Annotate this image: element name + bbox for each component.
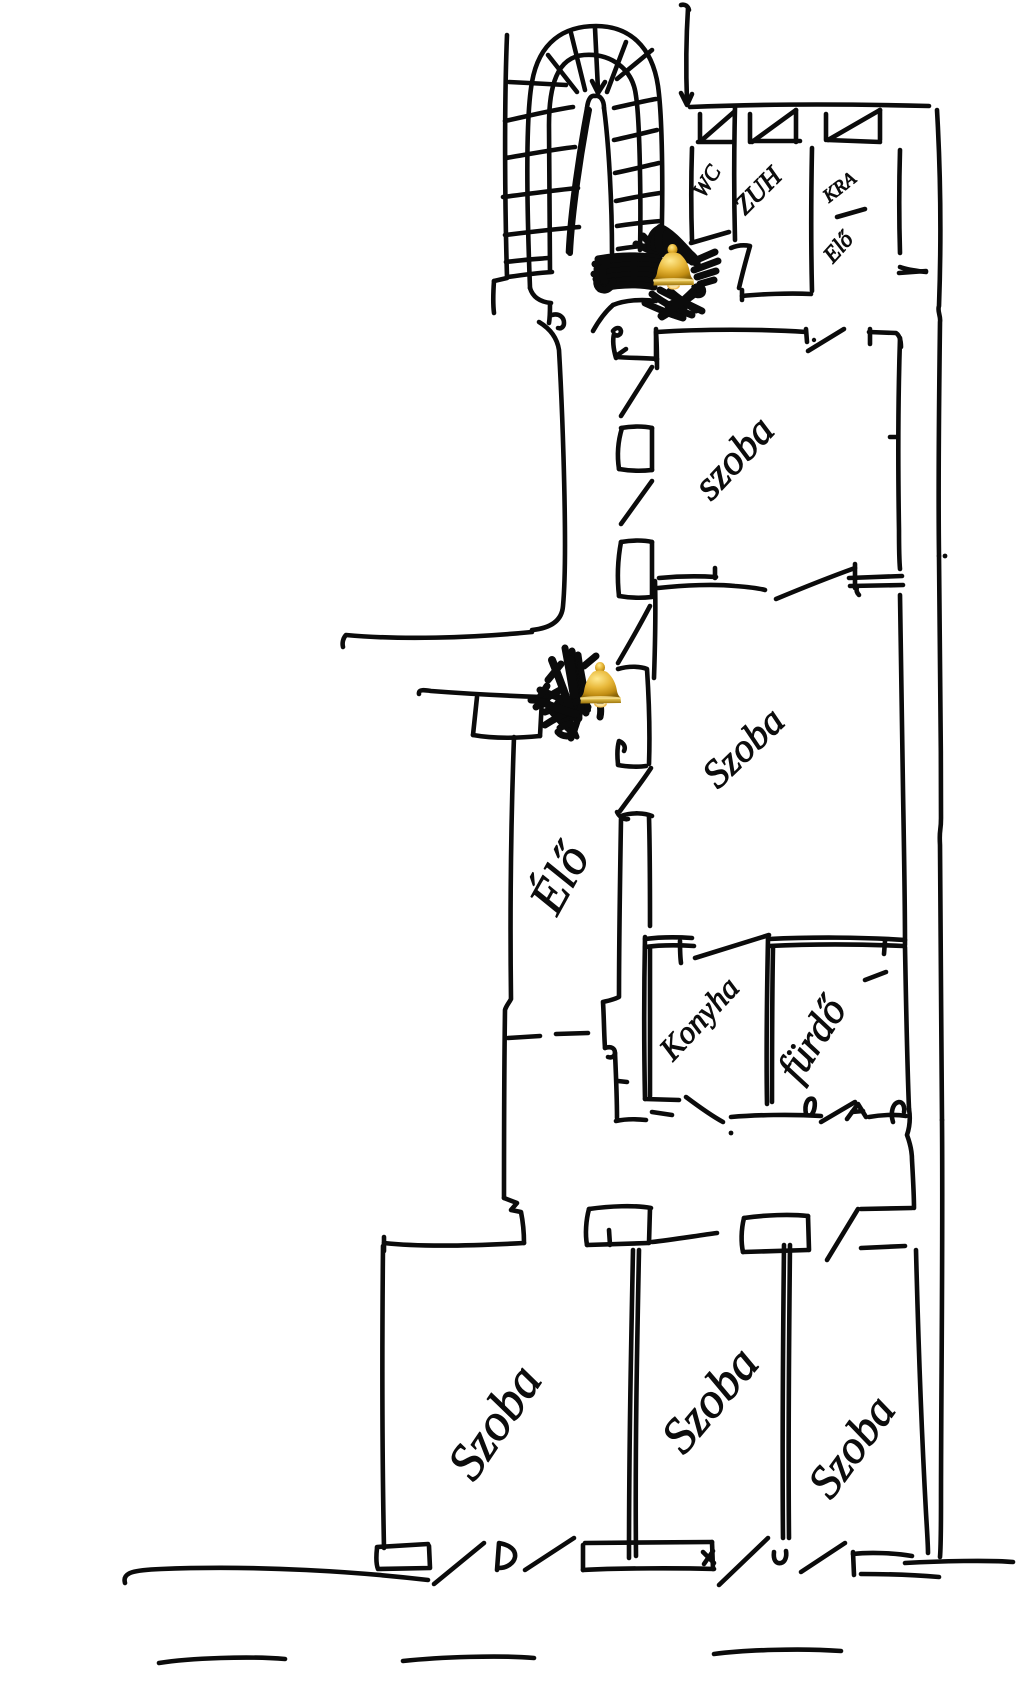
svg-text:ZUH: ZUH: [728, 160, 788, 220]
svg-text:Szoba: Szoba: [437, 1355, 554, 1490]
svg-text:Szoba: Szoba: [693, 698, 793, 797]
svg-text:fürdő: fürdő: [769, 988, 857, 1090]
svg-text:szoba: szoba: [685, 407, 784, 508]
svg-text:Konyha: Konyha: [651, 969, 746, 1067]
svg-text:Szoba: Szoba: [798, 1386, 906, 1507]
svg-text:Szoba: Szoba: [650, 1336, 770, 1464]
svg-text:Elő: Elő: [817, 226, 859, 268]
svg-text:KRA: KRA: [818, 168, 860, 207]
svg-text:Élő: Élő: [517, 833, 601, 924]
